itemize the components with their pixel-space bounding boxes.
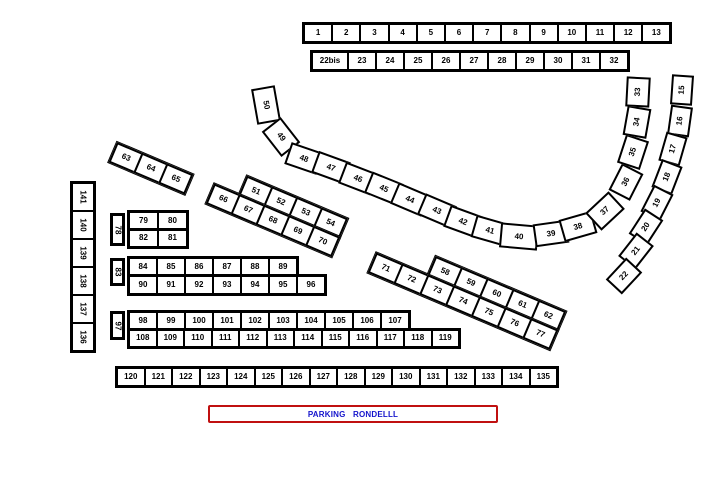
spot-label: 120 bbox=[124, 373, 137, 381]
spot-89: 89 bbox=[268, 257, 298, 277]
spot-label: 92 bbox=[195, 281, 204, 289]
spot-label: 131 bbox=[427, 373, 440, 381]
spot-label: 141 bbox=[79, 190, 87, 203]
spot-label: 114 bbox=[301, 334, 314, 342]
spot-128: 128 bbox=[336, 367, 366, 387]
spot-133: 133 bbox=[474, 367, 504, 387]
spot-label: 47 bbox=[325, 162, 336, 173]
spot-119: 119 bbox=[431, 329, 461, 349]
spot-83: 83 bbox=[111, 259, 124, 285]
grid-row: 90919293949596 bbox=[128, 275, 326, 295]
spot-label: 6 bbox=[457, 29, 461, 37]
row-spots-22bis-32: 22bis23242526272829303132 bbox=[311, 51, 629, 71]
spot-115: 115 bbox=[321, 329, 351, 349]
spot-label: 24 bbox=[386, 57, 395, 65]
spot-label: 77 bbox=[535, 329, 546, 340]
spot-label: 41 bbox=[485, 225, 496, 235]
spot-label: 95 bbox=[279, 281, 288, 289]
spot-label: 34 bbox=[632, 117, 641, 127]
spot-label: 8 bbox=[513, 29, 517, 37]
spot-140: 140 bbox=[71, 210, 95, 240]
spot-11: 11 bbox=[585, 23, 615, 43]
grid-row: 848586878889 bbox=[128, 257, 298, 277]
spot-2: 2 bbox=[331, 23, 361, 43]
spot-114: 114 bbox=[293, 329, 323, 349]
spot-label: 82 bbox=[139, 234, 148, 242]
spot-label: 88 bbox=[251, 263, 260, 271]
spot-label: 54 bbox=[325, 218, 336, 229]
spot-label: 1 bbox=[316, 29, 320, 37]
spot-124: 124 bbox=[226, 367, 256, 387]
spot-label: 13 bbox=[652, 29, 661, 37]
spot-8: 8 bbox=[500, 23, 530, 43]
spot-label: 138 bbox=[79, 274, 87, 287]
spot-label: 113 bbox=[274, 334, 287, 342]
spot-label: 86 bbox=[195, 263, 204, 271]
spot-label: 94 bbox=[251, 281, 260, 289]
spot-23: 23 bbox=[347, 51, 377, 71]
spot-label: 90 bbox=[139, 281, 148, 289]
site-plan: PARKING RONDELLL 1234567891011121322bis2… bbox=[0, 0, 707, 500]
spot-93: 93 bbox=[212, 275, 242, 295]
spot-113: 113 bbox=[266, 329, 296, 349]
spot-141: 141 bbox=[71, 182, 95, 212]
spot-9: 9 bbox=[529, 23, 559, 43]
spot-label: 64 bbox=[145, 163, 156, 174]
spot-label: 137 bbox=[79, 302, 87, 315]
column-spots-141-136: 141140139138137136 bbox=[71, 182, 95, 352]
spot-label: 75 bbox=[483, 307, 494, 318]
spot-116: 116 bbox=[348, 329, 378, 349]
spot-label: 19 bbox=[651, 197, 662, 209]
spot-label: 136 bbox=[79, 330, 87, 343]
spot-label: 89 bbox=[279, 263, 288, 271]
spot-label: 53 bbox=[300, 207, 311, 218]
spot-label: 140 bbox=[79, 218, 87, 231]
spot-label: 30 bbox=[554, 57, 563, 65]
spot-label: 18 bbox=[662, 171, 673, 182]
spot-label: 58 bbox=[439, 266, 450, 277]
spot-3: 3 bbox=[359, 23, 389, 43]
parking-rondell-label: PARKING RONDELLL bbox=[308, 410, 398, 419]
spot-label: 133 bbox=[482, 373, 495, 381]
spot-92: 92 bbox=[184, 275, 214, 295]
spot-4: 4 bbox=[388, 23, 418, 43]
spot-label: 69 bbox=[292, 225, 303, 236]
spot-label: 107 bbox=[388, 317, 401, 325]
spot-label: 45 bbox=[378, 183, 389, 194]
spot-label: 36 bbox=[620, 176, 631, 188]
spot-label: 98 bbox=[139, 317, 148, 325]
spot-27: 27 bbox=[459, 51, 489, 71]
spot-135: 135 bbox=[529, 367, 559, 387]
spot-110: 110 bbox=[183, 329, 213, 349]
spot-label: 60 bbox=[491, 288, 502, 299]
spot-label: 73 bbox=[432, 285, 443, 296]
spot-label: 35 bbox=[628, 147, 638, 158]
spot-label: 132 bbox=[454, 373, 467, 381]
spot-125: 125 bbox=[254, 367, 284, 387]
spot-label: 117 bbox=[384, 334, 397, 342]
spot-32: 32 bbox=[599, 51, 629, 71]
spot-label: 49 bbox=[275, 131, 287, 143]
spot-24: 24 bbox=[375, 51, 405, 71]
spot-26: 26 bbox=[431, 51, 461, 71]
spot-label: 25 bbox=[414, 57, 423, 65]
spot-134: 134 bbox=[501, 367, 531, 387]
spot-81: 81 bbox=[157, 229, 188, 249]
spot-label: 51 bbox=[250, 186, 261, 197]
spot-label: 67 bbox=[242, 204, 253, 215]
spot-label: 127 bbox=[317, 373, 330, 381]
spot-label: 50 bbox=[261, 100, 270, 110]
spot-label: 110 bbox=[191, 334, 204, 342]
parking-rondell-box: PARKING RONDELLL bbox=[208, 405, 498, 423]
spot-label: 119 bbox=[439, 334, 452, 342]
spot-28: 28 bbox=[487, 51, 517, 71]
spot-25: 25 bbox=[403, 51, 433, 71]
spot-label: 104 bbox=[304, 317, 317, 325]
spot-label: 63 bbox=[120, 152, 131, 163]
spot-label: 101 bbox=[220, 317, 233, 325]
spot-label: 65 bbox=[170, 173, 181, 184]
spot-label: 81 bbox=[168, 234, 177, 242]
spot-label: 20 bbox=[640, 221, 652, 233]
row-spots-1-13: 12345678910111213 bbox=[303, 23, 671, 43]
spot-label: 37 bbox=[599, 205, 611, 217]
spot-82: 82 bbox=[128, 229, 159, 249]
spot-label: 4 bbox=[400, 29, 404, 37]
spot-33: 33 bbox=[625, 76, 651, 107]
grid-row: 636465 bbox=[108, 142, 193, 195]
spot-label: 135 bbox=[537, 373, 550, 381]
spot-label: 112 bbox=[246, 334, 259, 342]
spot-label: 46 bbox=[352, 173, 363, 184]
spot-label: 91 bbox=[167, 281, 176, 289]
spot-label: 22 bbox=[618, 270, 630, 282]
spot-label: 108 bbox=[136, 334, 149, 342]
spot-label: 97 bbox=[114, 321, 122, 330]
spot-121: 121 bbox=[144, 367, 174, 387]
spot-label: 74 bbox=[457, 296, 468, 307]
spot-label: 125 bbox=[262, 373, 275, 381]
spot-label: 134 bbox=[509, 373, 522, 381]
spot-label: 115 bbox=[329, 334, 342, 342]
spot-label: 10 bbox=[567, 29, 576, 37]
spot-12: 12 bbox=[613, 23, 643, 43]
spot-95: 95 bbox=[268, 275, 298, 295]
spot-label: 130 bbox=[399, 373, 412, 381]
spot-label: 29 bbox=[526, 57, 535, 65]
spot-label: 72 bbox=[406, 274, 417, 285]
spot-label: 3 bbox=[372, 29, 376, 37]
spot-13: 13 bbox=[641, 23, 671, 43]
spot-label: 66 bbox=[218, 194, 229, 205]
spot-label: 12 bbox=[624, 29, 633, 37]
spot-label: 96 bbox=[307, 281, 316, 289]
grid-row: 108109110111112113114115116117118119 bbox=[128, 329, 460, 349]
spot-label: 16 bbox=[675, 116, 684, 126]
spot-88: 88 bbox=[240, 257, 270, 277]
spot-120: 120 bbox=[116, 367, 146, 387]
spot-label: 40 bbox=[514, 232, 524, 241]
spot-112: 112 bbox=[238, 329, 268, 349]
spot-78: 78 bbox=[111, 214, 124, 245]
spot-label: 84 bbox=[139, 263, 148, 271]
spot-5: 5 bbox=[416, 23, 446, 43]
spot-117: 117 bbox=[376, 329, 406, 349]
spot-label: 43 bbox=[431, 205, 442, 216]
spot-94: 94 bbox=[240, 275, 270, 295]
spot-label: 44 bbox=[404, 194, 415, 205]
spot-label: 71 bbox=[380, 263, 391, 274]
spot-label: 83 bbox=[114, 268, 122, 277]
spot-label: 126 bbox=[289, 373, 302, 381]
spot-1: 1 bbox=[303, 23, 333, 43]
spot-label: 31 bbox=[582, 57, 591, 65]
spot-label: 11 bbox=[596, 29, 604, 37]
spot-137: 137 bbox=[71, 294, 95, 324]
grid-row: 8281 bbox=[128, 229, 188, 249]
spot-label: 139 bbox=[79, 246, 87, 259]
spot-label: 38 bbox=[573, 221, 584, 231]
spot-label: 103 bbox=[276, 317, 289, 325]
spot-label: 9 bbox=[541, 29, 545, 37]
spot-91: 91 bbox=[156, 275, 186, 295]
spot-131: 131 bbox=[419, 367, 449, 387]
spot-label: 32 bbox=[610, 57, 619, 65]
spot-label: 118 bbox=[411, 334, 424, 342]
spot-85: 85 bbox=[156, 257, 186, 277]
spot-label: 80 bbox=[168, 217, 177, 225]
spot-118: 118 bbox=[403, 329, 433, 349]
spot-31: 31 bbox=[571, 51, 601, 71]
spot-label: 121 bbox=[152, 373, 165, 381]
spot-109: 109 bbox=[156, 329, 186, 349]
spot-65: 65 bbox=[158, 163, 193, 195]
spot-label: 21 bbox=[630, 245, 642, 257]
spot-29: 29 bbox=[515, 51, 545, 71]
spot-label: 33 bbox=[634, 87, 642, 96]
spot-label: 123 bbox=[207, 373, 220, 381]
spot-label: 59 bbox=[465, 277, 476, 288]
spot-label: 99 bbox=[167, 317, 176, 325]
spot-90: 90 bbox=[128, 275, 158, 295]
spot-130: 130 bbox=[391, 367, 421, 387]
spot-label: 102 bbox=[248, 317, 261, 325]
spot-label: 105 bbox=[332, 317, 345, 325]
spot-label: 111 bbox=[219, 334, 231, 342]
spot-label: 109 bbox=[164, 334, 177, 342]
spot-label: 26 bbox=[442, 57, 451, 65]
spot-84: 84 bbox=[128, 257, 158, 277]
spot-label: 100 bbox=[192, 317, 205, 325]
spot-label: 116 bbox=[356, 334, 369, 342]
spot-label: 7 bbox=[485, 29, 489, 37]
spot-label: 68 bbox=[267, 215, 278, 226]
spot-label: 128 bbox=[344, 373, 357, 381]
spot-123: 123 bbox=[199, 367, 229, 387]
spot-label: 62 bbox=[542, 310, 553, 321]
spot-label: 61 bbox=[517, 299, 528, 310]
spot-label: 122 bbox=[179, 373, 192, 381]
spot-label: 17 bbox=[668, 144, 678, 155]
spot-label: 23 bbox=[358, 57, 367, 65]
spot-136: 136 bbox=[71, 322, 95, 352]
spot-label: 2 bbox=[344, 29, 348, 37]
spot-34: 34 bbox=[623, 105, 652, 139]
spot-label: 48 bbox=[298, 153, 309, 163]
spot-15: 15 bbox=[670, 74, 694, 105]
spot-139: 139 bbox=[71, 238, 95, 268]
spot-10: 10 bbox=[557, 23, 587, 43]
spot-129: 129 bbox=[364, 367, 394, 387]
spot-label: 87 bbox=[223, 263, 232, 271]
spot-label: 5 bbox=[429, 29, 433, 37]
spot-126: 126 bbox=[281, 367, 311, 387]
spot-label: 106 bbox=[360, 317, 373, 325]
spot-label: 28 bbox=[498, 57, 507, 65]
spot-label: 52 bbox=[275, 196, 286, 207]
spot-108: 108 bbox=[128, 329, 158, 349]
spot-122: 122 bbox=[171, 367, 201, 387]
spot-label: 42 bbox=[457, 216, 468, 227]
spot-label: 78 bbox=[114, 225, 122, 234]
spot-label: 85 bbox=[167, 263, 176, 271]
spot-30: 30 bbox=[543, 51, 573, 71]
spot-127: 127 bbox=[309, 367, 339, 387]
spot-96: 96 bbox=[296, 275, 326, 295]
spot-label: 93 bbox=[223, 281, 232, 289]
spot-87: 87 bbox=[212, 257, 242, 277]
row-spots-120-135: 1201211221231241251261271281291301311321… bbox=[116, 367, 558, 387]
spot-7: 7 bbox=[472, 23, 502, 43]
spot-86: 86 bbox=[184, 257, 214, 277]
spot-label: 70 bbox=[317, 236, 328, 247]
spot-label: 129 bbox=[372, 373, 385, 381]
spot-6: 6 bbox=[444, 23, 474, 43]
spot-label: 76 bbox=[509, 318, 520, 329]
spot-label: 22bis bbox=[320, 57, 340, 65]
spot-label: 27 bbox=[470, 57, 479, 65]
spot-label: 124 bbox=[234, 373, 247, 381]
spot-132: 132 bbox=[446, 367, 476, 387]
spot-97: 97 bbox=[111, 312, 124, 339]
spot-label: 39 bbox=[546, 228, 556, 237]
spot-label: 79 bbox=[139, 217, 148, 225]
spot-22bis: 22bis bbox=[311, 51, 349, 71]
spot-label: 15 bbox=[678, 85, 687, 94]
spot-111: 111 bbox=[211, 329, 241, 349]
spot-138: 138 bbox=[71, 266, 95, 296]
